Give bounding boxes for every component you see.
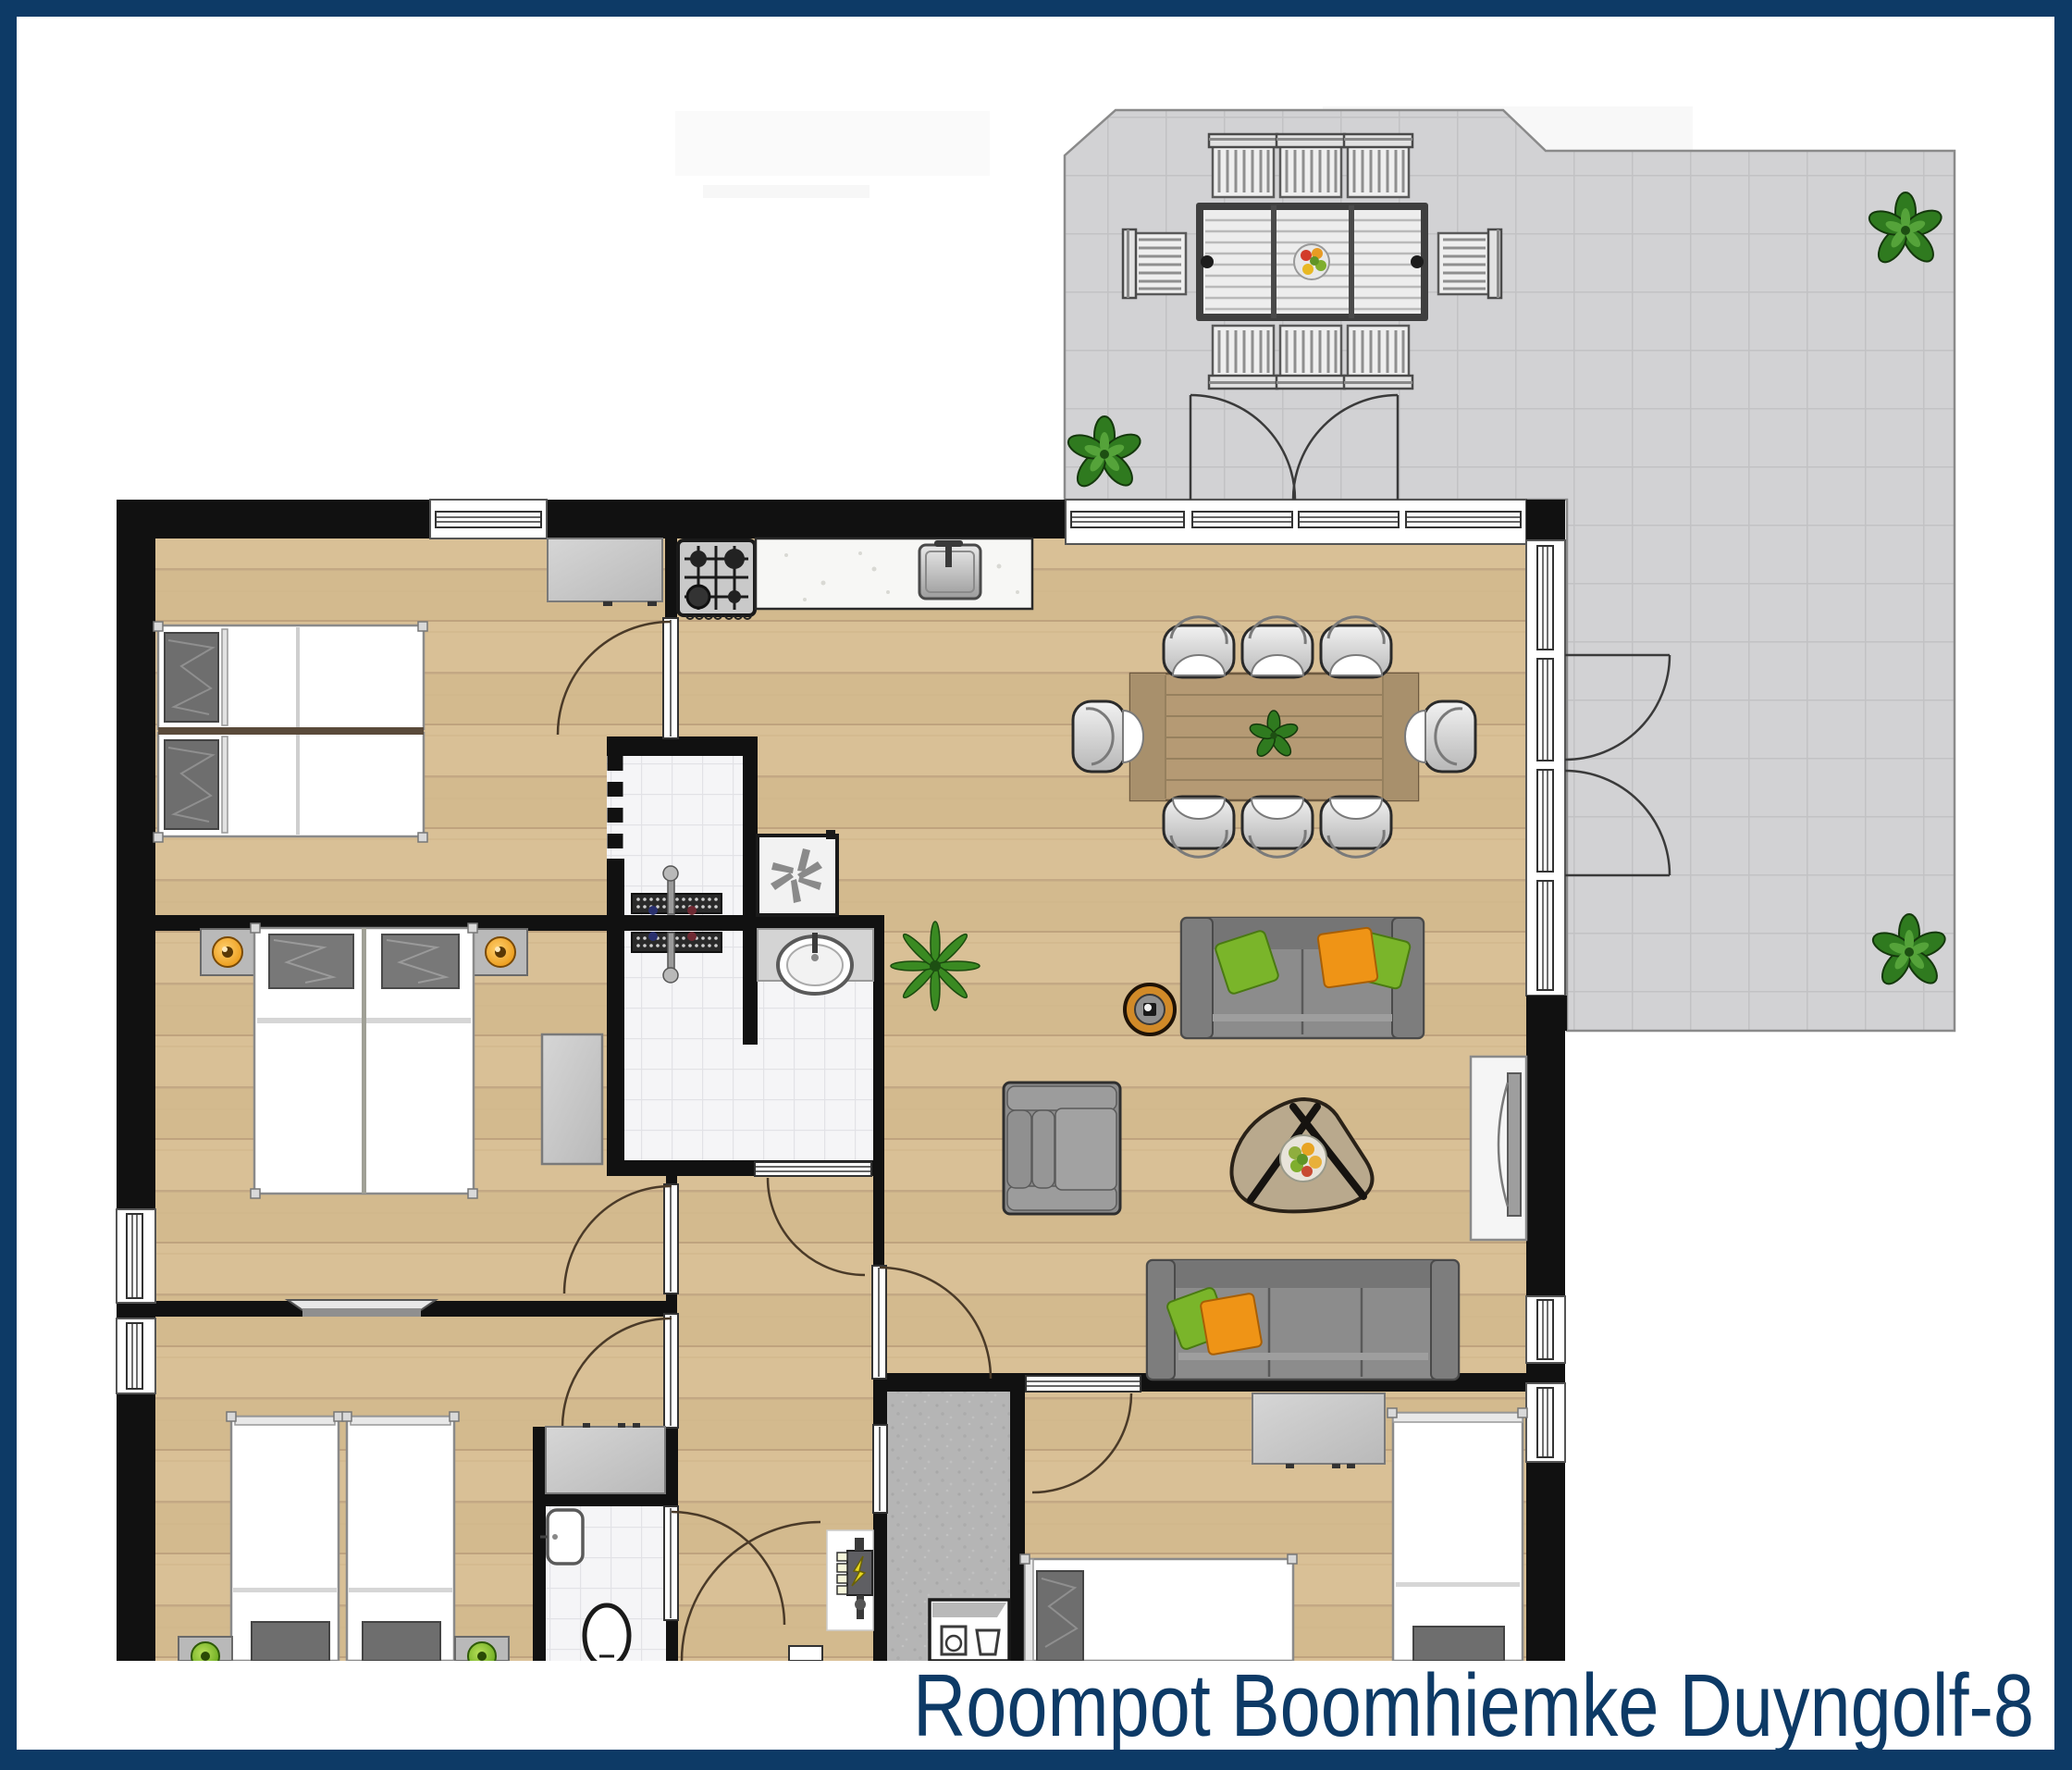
svg-text:Roompot Boomhiemke Duyngolf-8: Roompot Boomhiemke Duyngolf-8 (913, 1656, 2034, 1755)
